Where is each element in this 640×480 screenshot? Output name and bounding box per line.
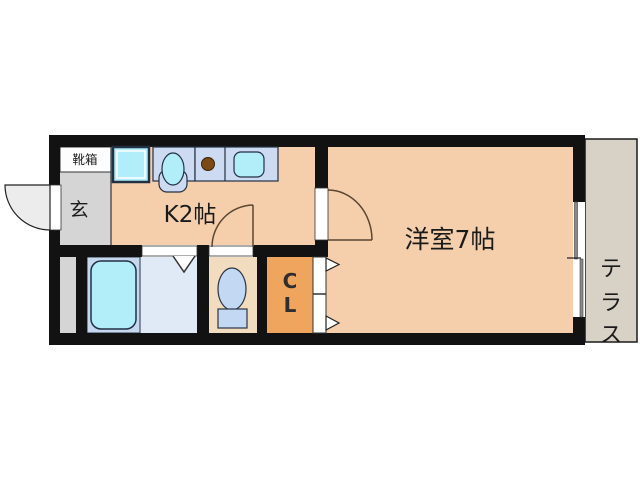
- kitchen-label: K2帖: [164, 202, 217, 228]
- western-room-floor-lower: [326, 257, 573, 333]
- entrance-door-arc: [5, 185, 50, 230]
- floor-plan-drawing: 靴箱 玄 K2帖 洋室7帖 C L テ ラ ス: [0, 0, 640, 480]
- terrace-label-2: ラ: [600, 291, 622, 316]
- stove-burner-icon: [202, 158, 215, 171]
- western-room-label: 洋室7帖: [405, 225, 496, 254]
- toilet-icon: [218, 268, 247, 328]
- terrace-label-3: ス: [600, 323, 622, 348]
- floor-plan-canvas: 靴箱 玄 K2帖 洋室7帖 C L テ ラ ス: [0, 0, 640, 480]
- bathtub-icon: [91, 261, 136, 329]
- shoe-box-label: 靴箱: [72, 152, 97, 167]
- pipe-space: [60, 257, 76, 333]
- washroom-door-opening: [142, 246, 197, 256]
- toilet-door-opening: [209, 246, 253, 256]
- closet-label-c: C: [283, 269, 298, 293]
- sink-icon: [234, 152, 264, 177]
- wash-basin-icon: [162, 153, 184, 185]
- closet-label-l: L: [284, 293, 297, 317]
- room-door-opening: [315, 188, 328, 240]
- entrance-label: 玄: [69, 199, 88, 221]
- washer-space-icon: [113, 147, 149, 182]
- terrace-label-1: テ: [600, 257, 622, 282]
